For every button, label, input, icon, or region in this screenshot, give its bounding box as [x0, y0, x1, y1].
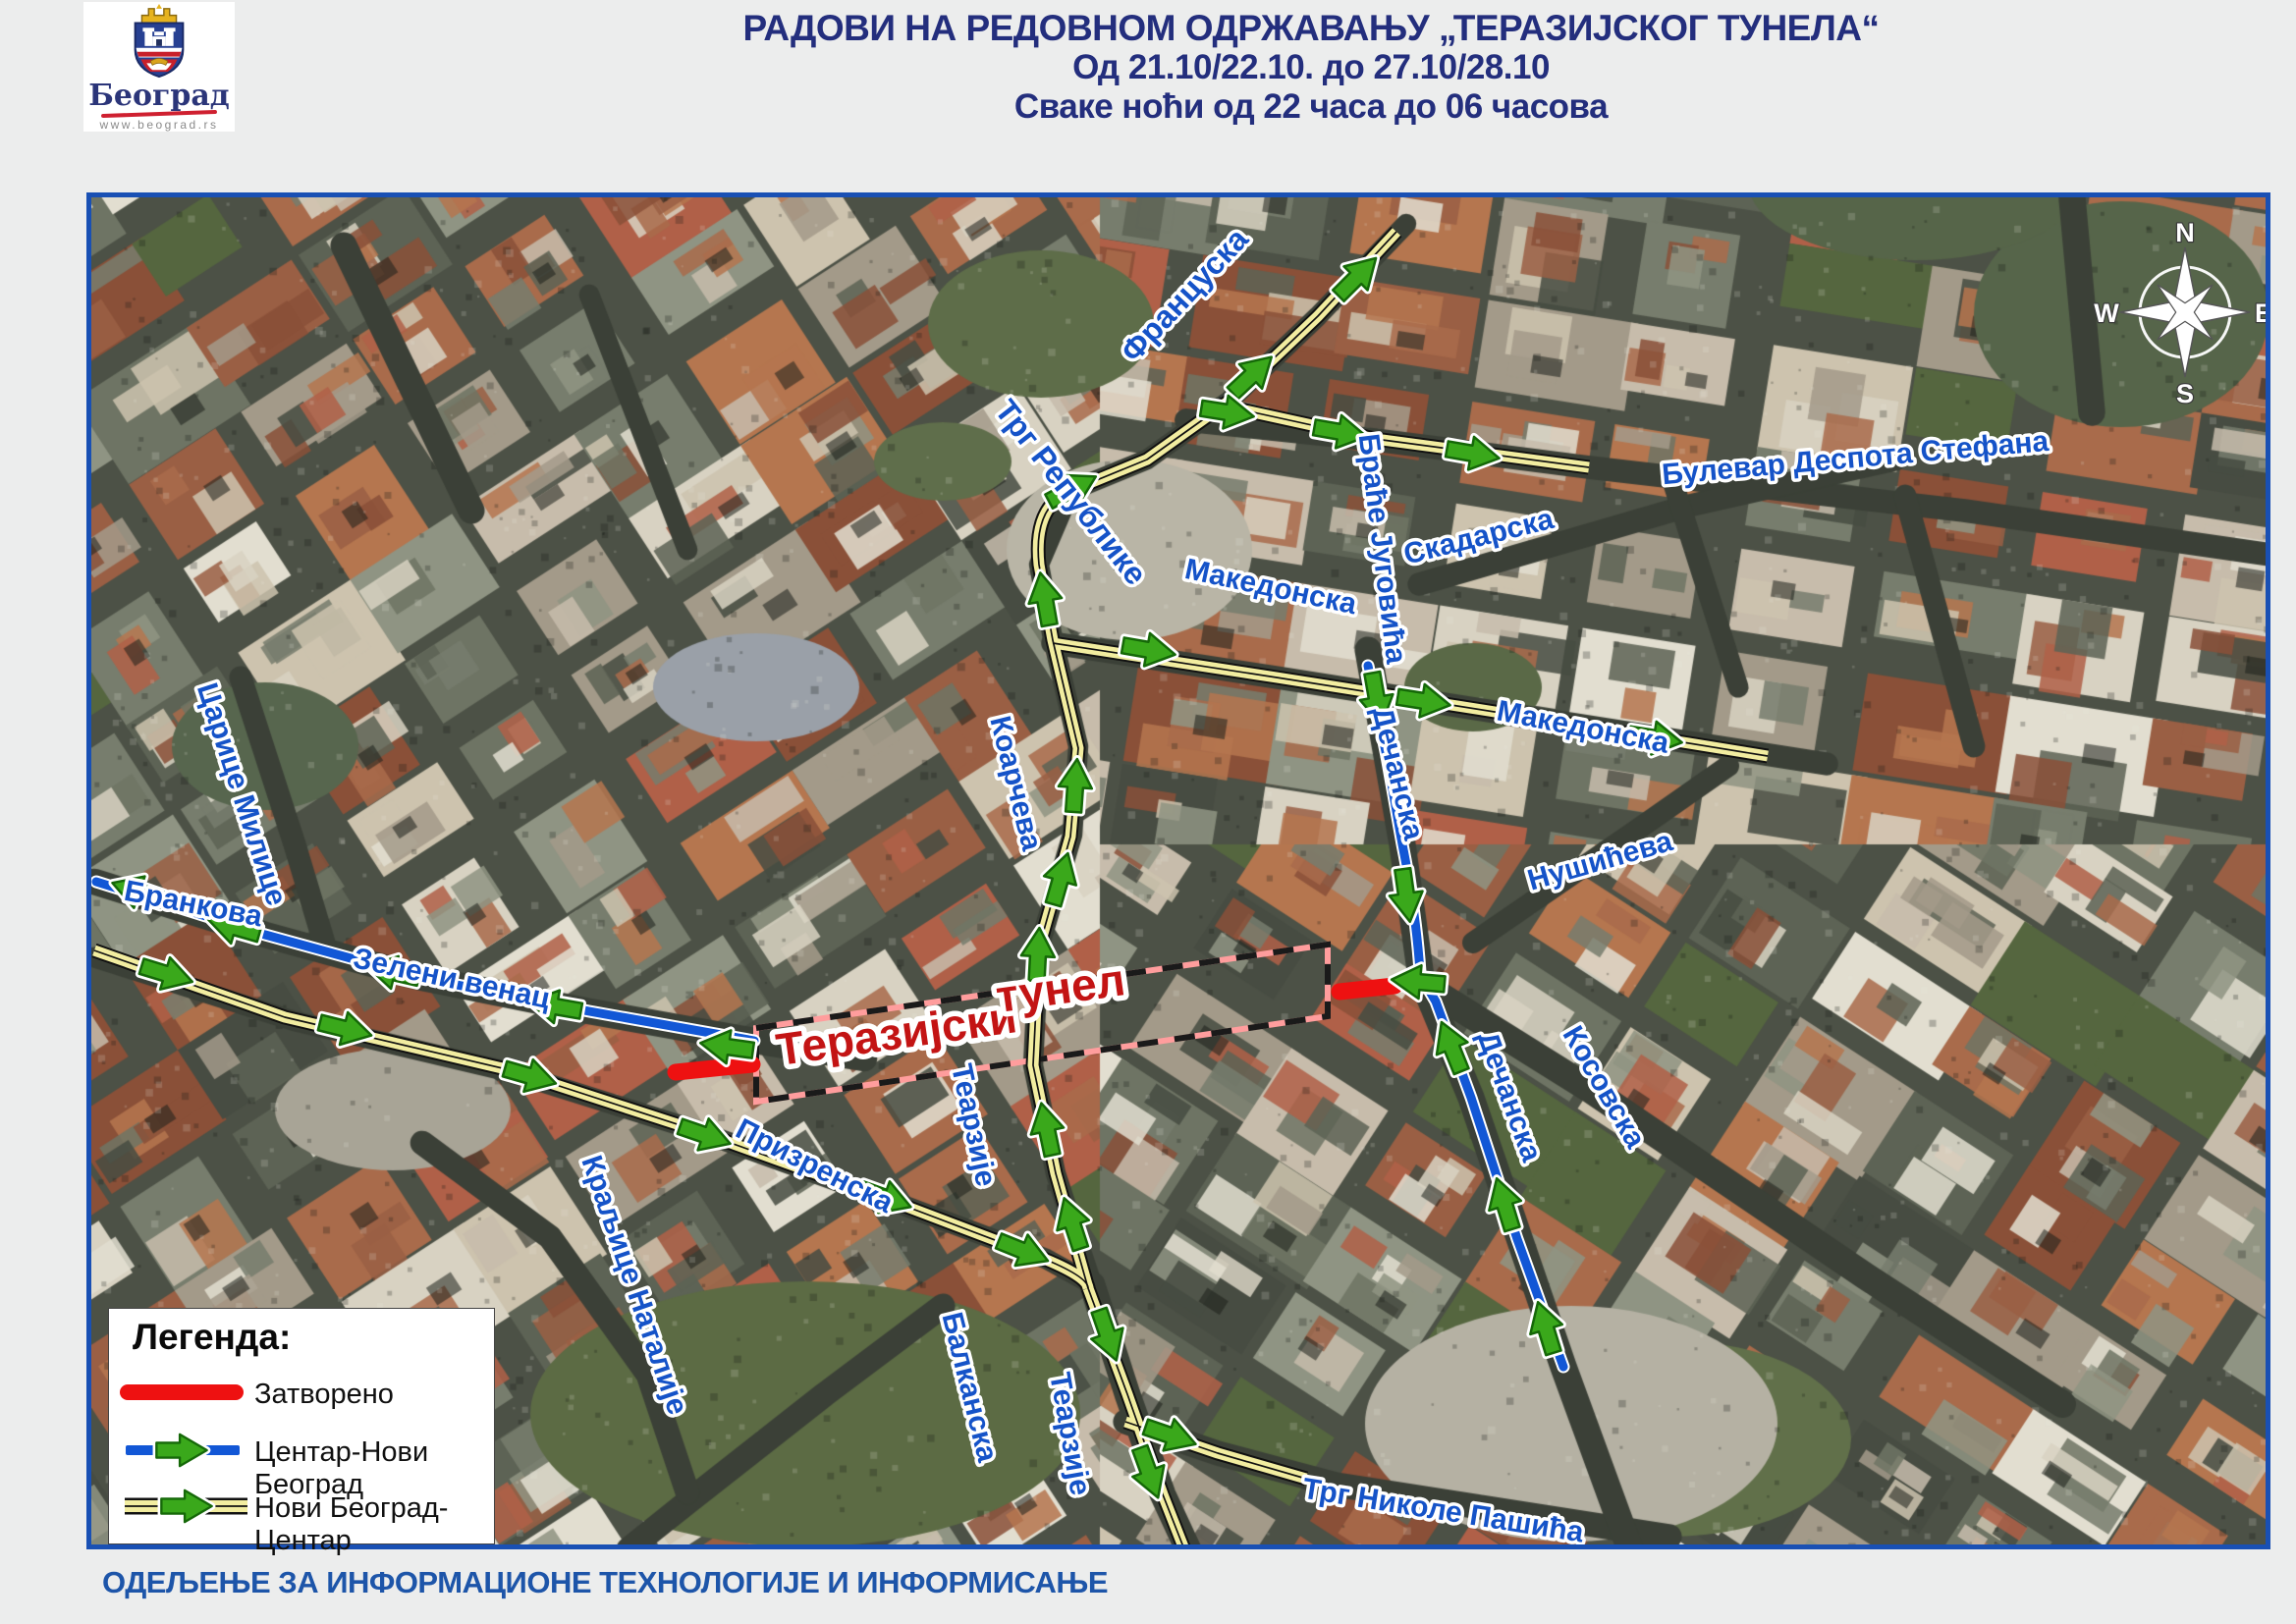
- roadworks-map-poster: Београд www.beograd.rs РАДОВИ НА РЕДОВНО…: [0, 0, 2296, 1624]
- time-range: Сваке ноћи од 22 часа до 06 часова: [334, 87, 2288, 126]
- belgrade-coat-of-arms-icon: [127, 2, 191, 79]
- legend-title: Легенда:: [133, 1317, 291, 1358]
- logo-url: www.beograd.rs: [83, 118, 235, 132]
- footer-department: ОДЕЉЕЊЕ ЗА ИНФОРМАЦИОНЕ ТЕХНОЛОГИЈЕ И ИН…: [102, 1565, 1108, 1600]
- date-range: Од 21.10/22.10. до 27.10/28.10: [334, 48, 2288, 86]
- belgrade-logo: Београд www.beograd.rs: [83, 2, 235, 132]
- legend-item-nbg-centar: Нови Београд-Центар: [254, 1492, 494, 1557]
- legend-item-closed: Затворено: [254, 1379, 394, 1411]
- page-title: РАДОВИ НА РЕДОВНОМ ОДРЖАВАЊУ „ТЕРАЗИЈСКО…: [334, 8, 2288, 48]
- header: РАДОВИ НА РЕДОВНОМ ОДРЖАВАЊУ „ТЕРАЗИЈСКО…: [334, 8, 2288, 126]
- logo-city-name: Београд: [83, 81, 235, 111]
- legend-box: Легенда: Затворено Центар-Нови Београд Н…: [108, 1308, 495, 1544]
